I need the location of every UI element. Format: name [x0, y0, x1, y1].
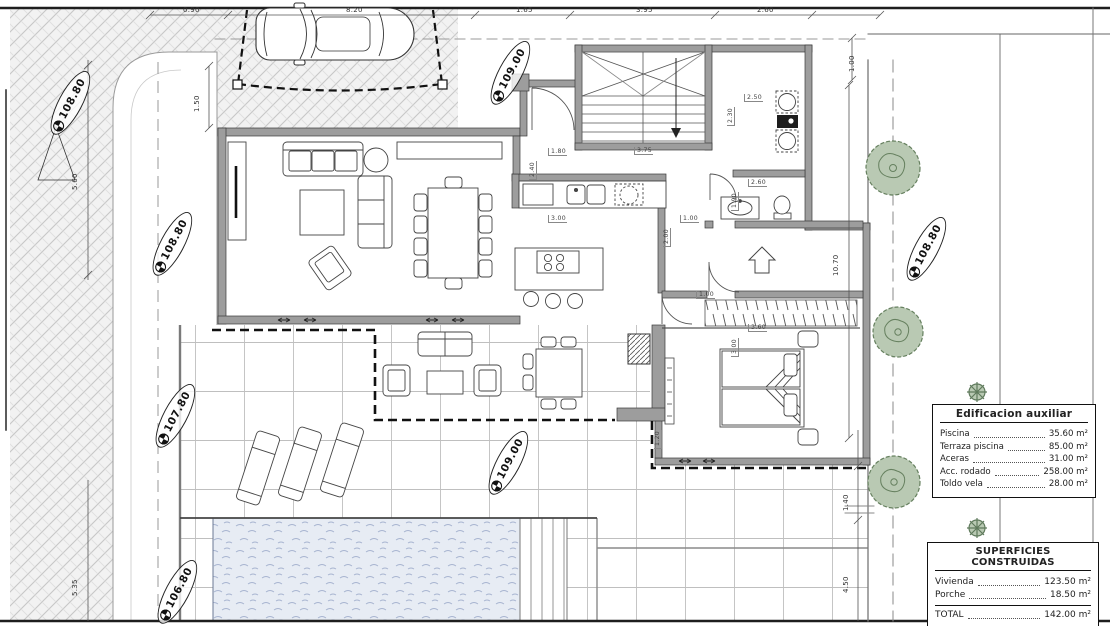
kitchen-counter: [519, 181, 666, 208]
legend-total-row: TOTAL 142.00 m²: [935, 609, 1091, 622]
mirror: [294, 3, 305, 8]
legend-row: Piscina 35.60 m²: [940, 428, 1088, 441]
legend-built-box: SUPERFICIES CONSTRUIDAS Vivienda 123.50 …: [927, 542, 1099, 626]
benchmark-icon: [907, 264, 922, 279]
legend-row-value: 35.60 m²: [1049, 428, 1088, 441]
dimension-label: 8.20: [346, 6, 363, 14]
dotted-leader: [1008, 450, 1045, 451]
dimension-label: 2.60: [748, 179, 767, 187]
staircase: [582, 52, 705, 143]
legend-row-label: Porche: [935, 589, 965, 602]
kitchen-island: [515, 248, 603, 309]
legend-row-value: 28.00 m²: [1049, 478, 1088, 491]
nightstand: [798, 331, 818, 347]
legend-row-label: Piscina: [940, 428, 970, 441]
dimension-label: 1.65: [516, 6, 533, 14]
dotted-leader: [968, 618, 1041, 619]
coffee-table: [300, 190, 344, 235]
legend-divider: [935, 605, 1091, 606]
dimension-label: 0.90: [183, 6, 200, 14]
benchmark-icon: [491, 88, 506, 103]
pillow: [784, 354, 797, 376]
dimension-label: 3.95: [636, 6, 653, 14]
floor-plan-drawing: [0, 0, 1110, 626]
dimension-label: 1.40: [842, 494, 850, 511]
dimension-label: 1.20: [654, 430, 662, 449]
dimension-label: 2.00: [663, 228, 671, 247]
dimension-label: 10.70: [832, 254, 840, 276]
stair-down-arrow: [671, 128, 681, 138]
legend-row: Terraza piscina 85.00 m²: [940, 441, 1088, 454]
dimension-label: 1.00: [696, 291, 715, 299]
legend-row: Aceras 31.00 m²: [940, 453, 1088, 466]
dotted-leader: [974, 437, 1045, 438]
bedroom-dresser: [665, 358, 674, 424]
faucet: [574, 188, 577, 191]
legend-row: Acc. rodado 258.00 m²: [940, 466, 1088, 479]
armchair: [307, 245, 352, 292]
benchmark-icon: [489, 478, 504, 493]
legend-row-value: 142.00 m²: [1044, 609, 1091, 622]
legend-row-label: Terraza piscina: [940, 441, 1004, 454]
barbecue: [628, 334, 650, 364]
stool: [546, 294, 561, 309]
legend-row-label: TOTAL: [935, 609, 964, 622]
oven: [777, 115, 798, 128]
living-furniture: [228, 142, 502, 291]
legend-auxiliary-box: Edificacion auxiliar Piscina 35.60 m² Te…: [932, 404, 1096, 498]
dimension-label: 5.60: [71, 173, 79, 190]
car: [256, 3, 414, 65]
dimension-label: 3.00: [731, 338, 739, 357]
side-table: [364, 148, 388, 172]
dotted-leader: [978, 585, 1041, 586]
dimension-label: 1.50: [193, 95, 201, 112]
dimension-label: 2.50: [744, 94, 763, 102]
outdoor-coffee-table: [427, 371, 463, 394]
legend-row-label: Aceras: [940, 453, 969, 466]
toilet: [774, 196, 790, 214]
stool: [524, 292, 539, 307]
pillow: [784, 394, 797, 416]
dimension-label: 3.00: [548, 215, 567, 223]
dotted-leader: [987, 487, 1045, 488]
legend-row-value: 123.50 m²: [1044, 576, 1091, 589]
dimension-label: 2.60: [757, 6, 774, 14]
legend-row: Porche 18.50 m²: [935, 589, 1091, 602]
legend-row-label: Vivienda: [935, 576, 974, 589]
nightstand: [798, 429, 818, 445]
dimension-label: 2.30: [727, 107, 735, 126]
legend-row-value: 31.00 m²: [1049, 453, 1088, 466]
legend-row-value: 85.00 m²: [1049, 441, 1088, 454]
sofa: [283, 142, 363, 176]
sofa-2: [358, 176, 392, 248]
dimension-label: 4.50: [842, 576, 850, 593]
benchmark-icon: [153, 259, 168, 274]
dotted-leader: [973, 462, 1045, 463]
stool: [568, 294, 583, 309]
legend-row-label: Toldo vela: [940, 478, 983, 491]
dimension-label: 1.80: [548, 148, 567, 156]
dining-table: [414, 177, 492, 289]
tree-icon: [873, 307, 923, 357]
dimension-label: 1.00: [848, 55, 856, 72]
dotted-leader: [995, 475, 1040, 476]
dimension-label: 2.40: [529, 161, 537, 180]
tree-icon: [868, 456, 920, 508]
benchmark-icon: [158, 607, 173, 622]
canopy-post: [233, 80, 242, 89]
legend-row-value: 258.00 m²: [1043, 466, 1088, 479]
pool: [180, 518, 597, 621]
legend-title: Edificacion auxiliar: [940, 405, 1088, 423]
legend-row-value: 18.50 m²: [1050, 589, 1091, 602]
benchmark-icon: [156, 431, 171, 446]
utility-appliances: [776, 91, 798, 152]
mirror: [294, 60, 305, 65]
legend-row-label: Acc. rodado: [940, 466, 991, 479]
dimension-label: 1.90: [731, 192, 739, 211]
legend-title: SUPERFICIES CONSTRUIDAS: [935, 543, 1091, 571]
legend-row: Vivienda 123.50 m²: [935, 576, 1091, 589]
canopy-post: [438, 80, 447, 89]
dimension-label: 5.35: [71, 579, 79, 596]
dimension-label: 3.75: [634, 147, 653, 155]
legend-row: Toldo vela 28.00 m²: [940, 478, 1088, 491]
dotted-leader: [969, 598, 1046, 599]
dimension-label: 1.00: [680, 215, 699, 223]
dimension-label: 3.60: [748, 324, 767, 332]
tree-icon: [866, 141, 920, 195]
benchmark-icon: [51, 118, 66, 133]
floor-plan-canvas: 108.80 108.80 107.80 106.80 109.00 109.0…: [0, 0, 1110, 626]
sideboard: [397, 142, 502, 159]
